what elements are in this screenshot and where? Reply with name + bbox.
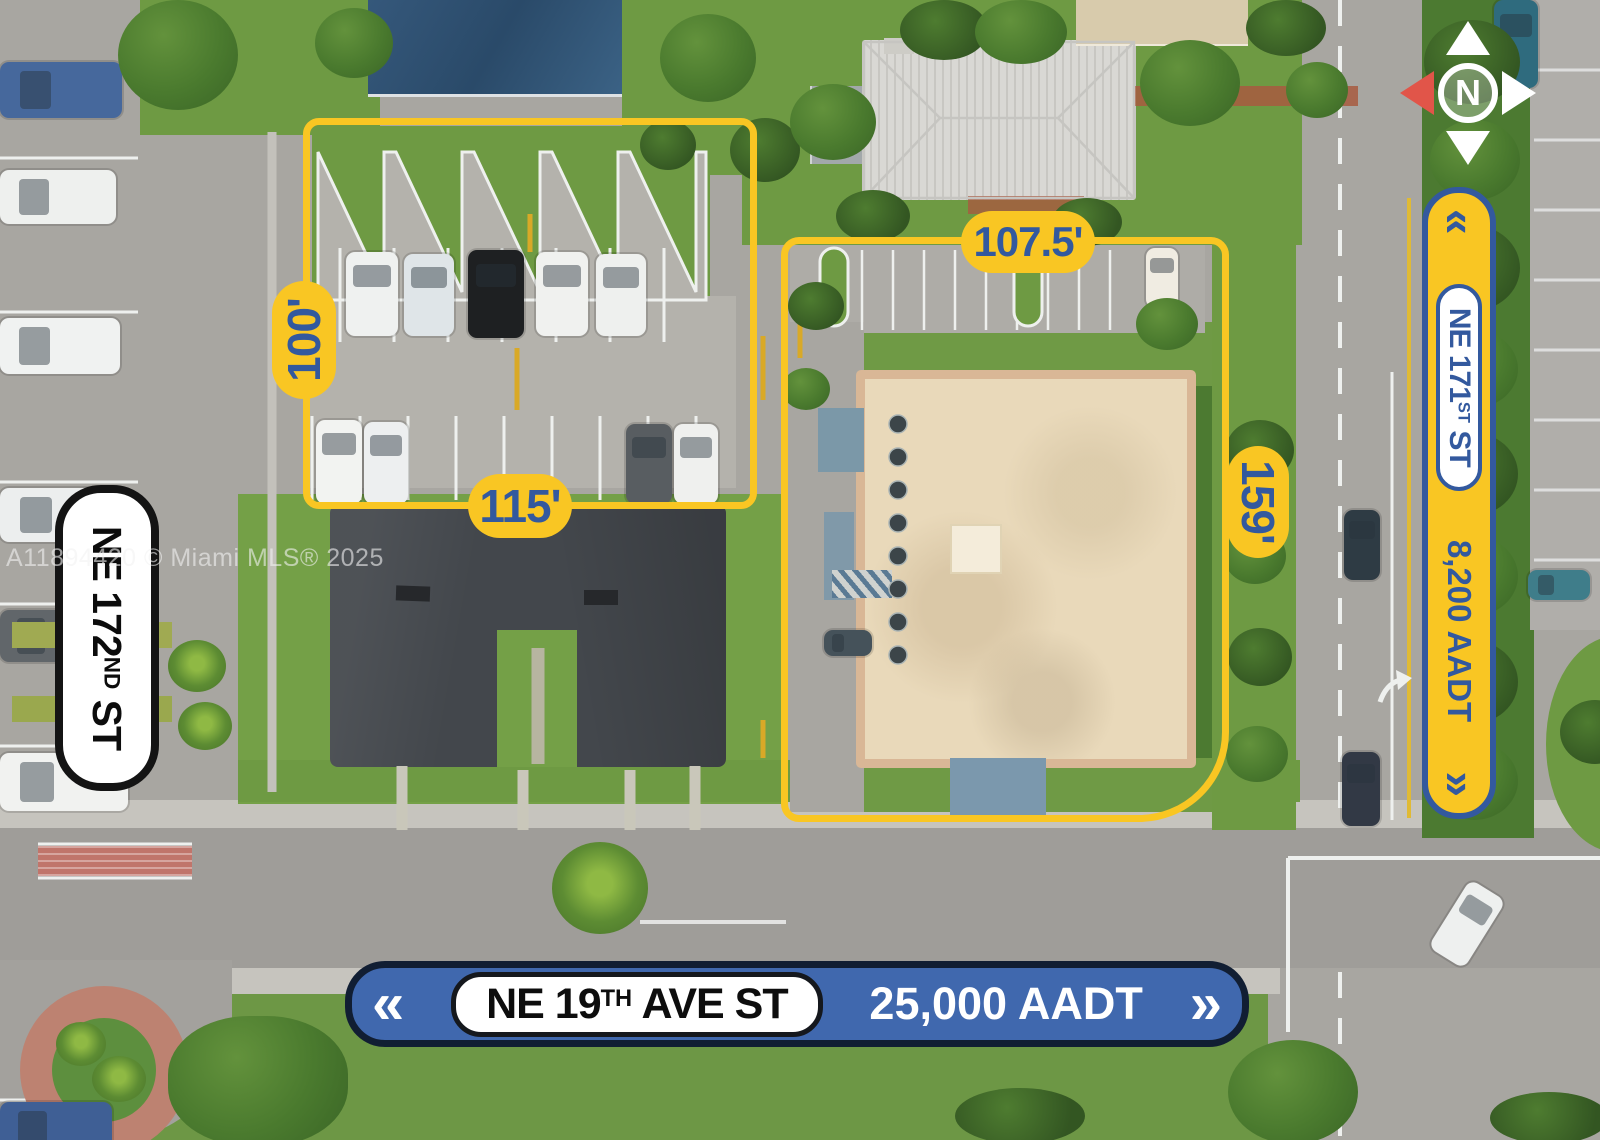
- parcel-1-boundary: [303, 118, 757, 509]
- tree: [975, 0, 1067, 64]
- tree: [1228, 1040, 1358, 1140]
- palm-tree: [92, 1056, 146, 1102]
- hedge: [836, 190, 910, 242]
- car: [0, 170, 116, 224]
- dimension-label-100ft: 100': [272, 281, 336, 399]
- street-sign-ne-171st-st: « NE 171ST ST 8,200 AADT »: [1422, 187, 1496, 819]
- car: [1342, 752, 1380, 826]
- compass-north-label: N: [1438, 63, 1498, 123]
- chevron-left-icon: «: [372, 978, 404, 1030]
- tree: [790, 84, 876, 160]
- tree: [118, 0, 238, 110]
- compass-east-arrow-icon: [1502, 71, 1536, 115]
- chevron-left-icon: «: [1438, 209, 1479, 235]
- compass-south-arrow-icon: [1446, 131, 1490, 165]
- tree: [1226, 726, 1288, 782]
- palm-tree: [552, 842, 648, 934]
- tree: [1228, 628, 1292, 686]
- street-sign-ne-172nd-st: NE 172ND ST: [55, 485, 159, 791]
- tree: [1246, 0, 1326, 56]
- palm-tree: [178, 702, 232, 750]
- car: [0, 1102, 112, 1140]
- tree: [1286, 62, 1348, 118]
- traffic-count: 8,200 AADT: [1440, 540, 1478, 722]
- dimension-label-159ft: 159': [1227, 446, 1289, 558]
- street-name: NE 171ST ST: [1436, 284, 1482, 491]
- dimension-label-115ft: 115': [468, 474, 572, 538]
- tree: [168, 1016, 348, 1140]
- aerial-photo: 100' 115' 107.5' 159' NE 172ND ST « NE 1…: [0, 0, 1600, 1140]
- street-sign-ne-19th-ave-st: « NE 19TH AVE ST 25,000 AADT »: [345, 961, 1249, 1047]
- chevron-right-icon: »: [1190, 978, 1222, 1030]
- palm-tree: [56, 1022, 106, 1066]
- car: [1528, 570, 1590, 600]
- tree: [1140, 40, 1240, 126]
- car: [1344, 510, 1380, 580]
- traffic-count: 25,000 AADT: [869, 978, 1142, 1030]
- mls-watermark: A11894420 © Miami MLS® 2025: [6, 544, 384, 573]
- car: [0, 62, 122, 118]
- street-name: NE 19TH AVE ST: [451, 972, 823, 1037]
- parcel-2-boundary: [781, 237, 1229, 822]
- tree: [660, 14, 756, 102]
- dimension-label-107-5ft: 107.5': [961, 211, 1095, 273]
- compass-north-arrow-icon: [1446, 21, 1490, 55]
- tree: [315, 8, 393, 78]
- compass-west-arrow-icon: [1400, 71, 1434, 115]
- tree: [1490, 1092, 1600, 1140]
- tree: [955, 1088, 1085, 1140]
- chevron-right-icon: »: [1438, 771, 1479, 797]
- car: [0, 318, 120, 374]
- palm-tree: [168, 640, 226, 692]
